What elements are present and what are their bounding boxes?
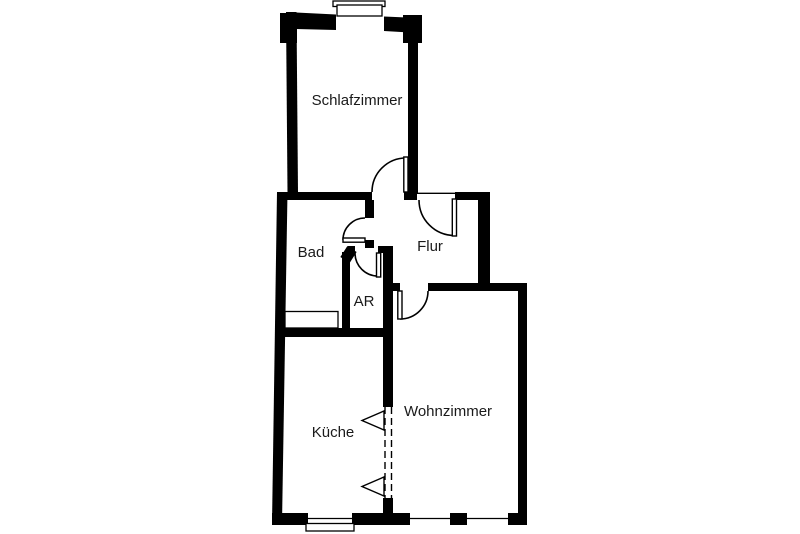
wall-bad-flur-lower bbox=[365, 240, 374, 248]
wall-right-bedroom bbox=[408, 17, 418, 193]
passage-kueche-wohnzimmer bbox=[362, 407, 392, 498]
window-kueche-sash-outer bbox=[306, 524, 354, 532]
windows bbox=[285, 1, 508, 531]
wall-bad-flur-upper bbox=[365, 200, 374, 218]
wall-divider-bottom-stub bbox=[383, 498, 393, 518]
window-bad-kueche bbox=[285, 312, 338, 329]
floor-plan-canvas: Schlafzimmer Bad Flur AR Küche Wohnzimme… bbox=[0, 0, 800, 534]
wall-divider-vertical bbox=[383, 246, 393, 407]
room-label-ar: AR bbox=[354, 293, 375, 310]
wall-flur-bottom-left bbox=[383, 283, 400, 291]
wall-bottom-seg1 bbox=[272, 513, 308, 525]
door-leaf-schlafzimmer bbox=[404, 157, 408, 192]
passage-arrow-bottom bbox=[362, 477, 384, 496]
passage-arrow-top bbox=[362, 411, 384, 430]
wall-bad-kueche bbox=[277, 328, 393, 337]
window-schlafzimmer-sash-inner bbox=[337, 5, 382, 16]
door-arc-wohnzimmer bbox=[400, 291, 428, 319]
door-leaf-wohnzimmer bbox=[398, 291, 402, 319]
wall-left-lower bbox=[272, 192, 288, 524]
door-arc-bad bbox=[343, 218, 365, 240]
room-labels: Schlafzimmer Bad Flur AR Küche Wohnzimme… bbox=[298, 92, 492, 441]
wall-right-wohnzimmer bbox=[518, 283, 527, 525]
door-leaf-ar bbox=[377, 253, 381, 277]
wall-band192-left bbox=[277, 192, 372, 200]
wall-band192-mid bbox=[404, 192, 417, 200]
wall-band192-right bbox=[455, 192, 490, 200]
room-label-schlafzimmer: Schlafzimmer bbox=[312, 92, 403, 109]
wall-bottom-seg4 bbox=[508, 513, 527, 525]
wall-bottom-seg3 bbox=[450, 513, 467, 525]
wall-bottom-seg2 bbox=[352, 513, 410, 525]
room-label-flur: Flur bbox=[417, 238, 443, 255]
room-label-kueche: Küche bbox=[312, 424, 355, 441]
door-arc-entrance bbox=[419, 200, 455, 236]
exterior-walls bbox=[272, 12, 527, 525]
wall-flur-bottom-right bbox=[428, 283, 527, 291]
wall-right-flur bbox=[478, 192, 490, 291]
door-leaf-bad bbox=[343, 238, 365, 242]
floor-plan-page: Schlafzimmer Bad Flur AR Küche Wohnzimme… bbox=[0, 0, 800, 534]
door-arc-ar bbox=[355, 253, 378, 276]
door-leaf-entrance bbox=[452, 199, 456, 236]
wall-ar-left bbox=[342, 252, 350, 337]
door-arc-schlafzimmer bbox=[372, 158, 406, 192]
room-label-wohnzimmer: Wohnzimmer bbox=[404, 403, 492, 420]
room-label-bad: Bad bbox=[298, 244, 325, 261]
